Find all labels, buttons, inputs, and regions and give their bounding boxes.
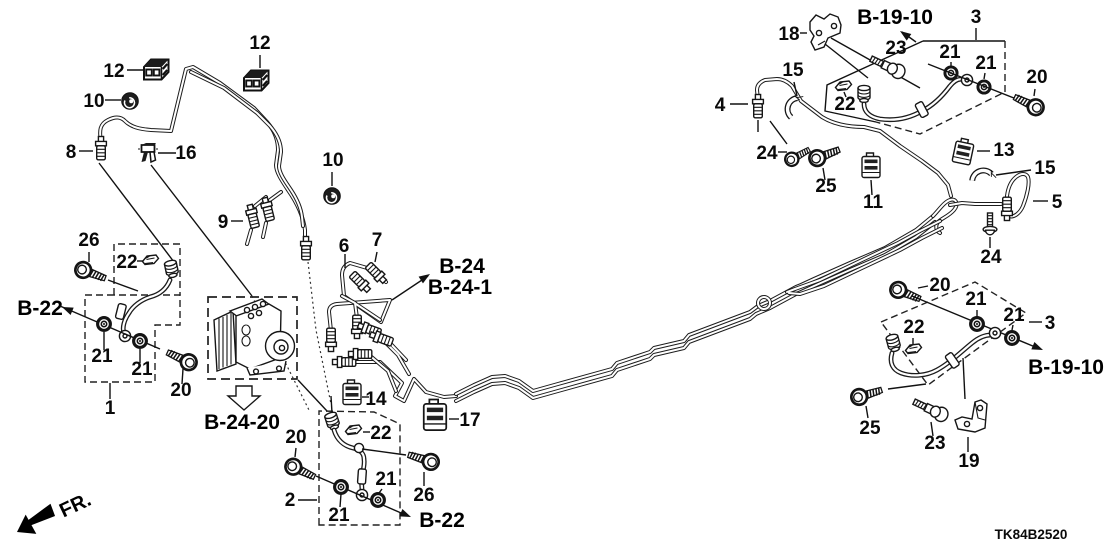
svg-text:26: 26 — [413, 485, 434, 506]
svg-text:TK84B2520: TK84B2520 — [995, 527, 1068, 542]
svg-text:17: 17 — [459, 410, 480, 431]
svg-text:25: 25 — [815, 176, 837, 197]
svg-text:23: 23 — [924, 433, 945, 454]
svg-text:25: 25 — [859, 418, 881, 439]
svg-text:21: 21 — [965, 289, 987, 310]
svg-text:22: 22 — [834, 94, 855, 115]
svg-text:24: 24 — [980, 247, 1002, 268]
svg-text:18: 18 — [778, 24, 799, 45]
svg-text:10: 10 — [83, 91, 104, 112]
svg-text:15: 15 — [782, 60, 804, 81]
svg-text:15: 15 — [1034, 158, 1056, 179]
svg-text:B-19-10: B-19-10 — [1028, 356, 1104, 379]
svg-text:21: 21 — [328, 505, 350, 526]
svg-text:14: 14 — [365, 389, 387, 410]
svg-text:1: 1 — [105, 398, 116, 419]
svg-text:8: 8 — [66, 142, 77, 163]
svg-text:B-24-1: B-24-1 — [428, 276, 493, 299]
svg-text:20: 20 — [170, 380, 191, 401]
svg-text:21: 21 — [131, 359, 153, 380]
svg-text:20: 20 — [1026, 67, 1047, 88]
svg-text:3: 3 — [971, 7, 982, 28]
svg-text:12: 12 — [249, 33, 270, 54]
svg-text:21: 21 — [939, 42, 961, 63]
svg-text:12: 12 — [103, 61, 124, 82]
svg-text:24: 24 — [756, 143, 778, 164]
svg-text:B-19-10: B-19-10 — [857, 6, 933, 29]
svg-text:5: 5 — [1052, 192, 1063, 213]
svg-text:21: 21 — [1003, 305, 1025, 326]
svg-text:B-24-20: B-24-20 — [204, 411, 280, 434]
svg-text:13: 13 — [993, 140, 1014, 161]
svg-text:20: 20 — [929, 275, 950, 296]
svg-text:3: 3 — [1045, 313, 1056, 334]
svg-text:21: 21 — [375, 469, 397, 490]
svg-text:4: 4 — [715, 95, 726, 116]
svg-text:16: 16 — [175, 143, 196, 164]
svg-text:9: 9 — [218, 212, 229, 233]
svg-text:2: 2 — [285, 490, 296, 511]
svg-text:26: 26 — [78, 230, 99, 251]
svg-text:6: 6 — [339, 236, 350, 257]
svg-text:23: 23 — [885, 38, 906, 59]
svg-text:22: 22 — [903, 317, 924, 338]
svg-text:B-24: B-24 — [439, 255, 485, 278]
svg-text:20: 20 — [285, 427, 306, 448]
svg-text:22: 22 — [370, 423, 391, 444]
svg-text:21: 21 — [91, 346, 113, 367]
svg-text:21: 21 — [975, 53, 997, 74]
svg-text:B-22: B-22 — [17, 297, 63, 320]
svg-text:11: 11 — [863, 192, 884, 213]
svg-text:10: 10 — [322, 150, 343, 171]
svg-text:7: 7 — [372, 230, 383, 251]
svg-text:22: 22 — [116, 252, 137, 273]
svg-text:19: 19 — [958, 451, 979, 472]
svg-text:B-22: B-22 — [419, 509, 465, 532]
